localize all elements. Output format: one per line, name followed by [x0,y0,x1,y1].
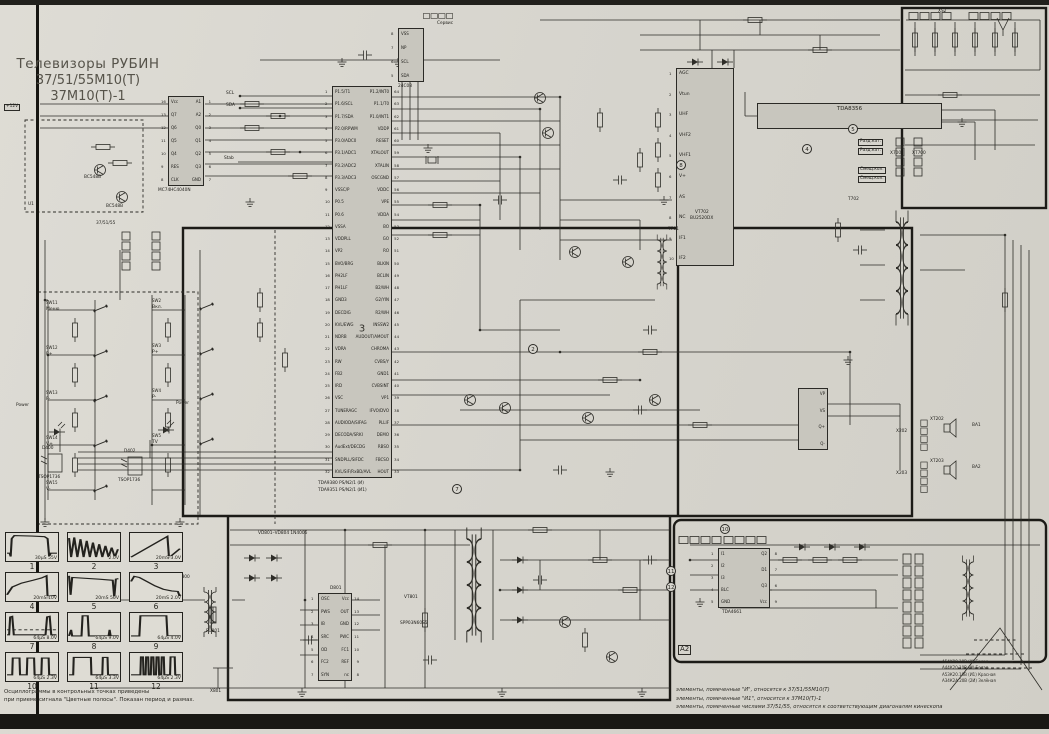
test-point: 7 [452,484,462,494]
pin-row: 35RBSO [378,445,389,449]
pin-number: 3 [669,113,671,117]
pin-row: 27TUNERAGC [335,409,357,413]
transistor-bc548b-2: BC548B [106,205,123,210]
pin-number: 1 [209,100,211,104]
oscillogram-number: 6 [129,602,183,611]
pin-number: 7 [311,673,313,677]
oscillogram-scale-label: 2.0V [109,556,119,561]
pin-label: Q0 [195,125,201,130]
pin-label: FB2 [335,371,343,376]
pin-number: 14 [325,249,330,253]
pin-row: 2A2 [196,113,201,117]
pin-label: P0.5 [335,199,344,204]
keyboard-key[interactable]: SW2Вкл. [150,296,222,341]
pin-number: 20 [325,323,330,327]
pin-label: D1 [761,567,767,572]
oscillogram-scale-label: 64µS 3.3V [95,676,119,681]
test-point: 10 [720,524,730,534]
pin-row: 6Q3 [195,165,201,169]
pin-row: 8NC [679,216,686,221]
pin-number: 7 [391,46,393,50]
pin-row: 33HOUT [377,470,389,474]
pin-row: 3I3 [721,576,725,580]
pin-row: 2P1.6/SCL [335,102,353,106]
pin-label: A1 [196,99,201,104]
keyboard-key[interactable]: SW4P- [150,386,222,431]
switch-ref: SW11 [46,300,58,305]
pin-label: SCL [401,59,409,64]
pin-row: 50BLKIN [377,262,389,266]
keyboard-key[interactable]: SW5TV [150,431,222,476]
module-u1-label: U1 [28,203,34,208]
oscillogram-note-line1: Осциллограммы в контрольных точках приве… [4,688,194,696]
keyboard-key[interactable]: SW13P- [44,388,116,433]
pin-label: VDDP [378,126,389,131]
crt-connector-label-1: Разд.кат. [858,139,883,146]
pin-number: 39 [394,396,399,400]
pin-label: IF1 [679,236,686,241]
pin-number: 13 [354,610,359,614]
pin-row: 58XTALIN [375,164,389,168]
pin-label: IRD [335,383,342,388]
switch-label: P+ [46,352,52,357]
pin-row: 4BLC [721,588,729,592]
bus-stab-label: Stab [224,157,234,162]
pin-row: 8Q2 [761,552,767,556]
pin-number: 7 [775,568,777,572]
pin-label: BLC [721,587,729,592]
switch-icon [201,349,212,354]
pin-row: 44AUDOUT/AMOUT [356,335,389,339]
switch-icon [201,394,212,399]
pin-number: 17 [325,286,330,290]
keyboard-key[interactable]: SW12P+ [44,343,116,388]
schematic-title-line2: 37/51/55М10(Т) [8,73,168,89]
pin-number: 7 [669,196,671,200]
pin-row: 47G2/YIN [375,298,389,302]
pin-label: VDDC [377,187,389,192]
pin-label: OUT [340,609,349,614]
pin-row: 11PWC [340,635,349,639]
pin-label: Vcc [171,99,178,104]
pin-label: IB [321,621,325,626]
pin-number: 15 [325,262,330,266]
pin-label: nc [344,672,349,677]
counter-name: MC74HC4040N [158,188,191,193]
oscilloscope-trace-box: pulse_wide 64µS 4.0V [129,612,183,642]
pin-label: Q- [820,441,825,446]
pin-number: 1 [669,72,671,76]
pin-label: XTALIN [375,163,389,168]
oscillogram: ramp 20mS 3.0V 3 [129,532,186,572]
schematic-title-line1: Телевизоры РУБИН [8,56,168,73]
eeprom-name: 24C08 [398,84,412,89]
oscillogram: pulse_dashed 64µS 8.0V 7 [5,612,62,652]
pin-row: 4Q1 [195,139,201,143]
pin-row: 8VSS [401,32,409,36]
pin-row: 15BVO/BRG [335,262,353,266]
uoc-type-line2: TDA9351 PS/N2/1 (И1) [318,488,367,493]
pin-number: 10 [354,648,359,652]
switch-label: Вкл. [152,305,162,310]
pin-number: 52 [394,237,399,241]
pin-row: 3Q0 [195,126,201,130]
keyboard-key[interactable]: SW11Меню [44,298,116,343]
pin-number: 3 [325,115,327,119]
pin-row: 1P1.5/T1 [335,90,350,94]
oscillogram: wide_narrow 64µS 3.3V 11 [67,652,124,692]
pin-number: 5 [391,74,393,78]
pin-number: 19 [325,311,330,315]
connector-x202-label: Х202 [896,430,907,435]
oscillogram-scale-label: 20mS 2.0V [156,596,181,601]
audio-pins: VPVSQ+Q- [819,392,826,446]
pin-label: BVO/BRG [335,261,353,266]
pin-number: 4 [311,635,313,639]
legend-line2: элементы, помеченные "И1", относятся к 3… [676,695,943,704]
pin-row: 6P3.1/ADC1 [335,151,356,155]
pin-row: 52GO [383,237,389,241]
oscillogram-number: 3 [129,562,183,571]
oscilloscope-trace-box: vsync_pulse 30µS 55V [5,532,59,562]
connector-x700-label: Х700 [890,152,901,157]
schematic-title-line3: 37М10(Т)-1 [8,89,168,105]
pin-label: FC2 [321,659,329,664]
pin-label: P1.1/T0 [374,101,389,106]
pin-label: GND3 [335,297,347,302]
uoc-type-line1: TDA9380 PS/N2/1 (И) [318,481,364,486]
pin-number: 47 [394,298,399,302]
pin-row: 5Q2 [195,152,201,156]
pin-row: 14VP2 [335,249,343,253]
switch-ref: SW15 [46,480,58,485]
scan-edge-bottom [0,714,1049,729]
pin-row: 3IB [321,622,325,626]
pin-number: 48 [394,286,399,290]
pin-row: 7NP [401,46,406,50]
pin-label: Q2 [195,151,201,156]
pin-row: 4SRC [321,635,329,639]
pin-row: Q- [820,442,825,446]
pin-number: 8 [161,178,163,182]
pin-row: 26VSC [335,396,343,400]
schematic-sheet: Телевизоры РУБИН 37/51/55М10(Т) 37М10(Т)… [0,0,1049,734]
speaker-ba1-label: ВА1 [972,424,981,429]
pin-label: G2/YIN [375,297,389,302]
pin-label: P1.2/INT0 [370,89,389,94]
pin-row: 46R2/WH [375,311,389,315]
switch-label: V- [46,487,50,492]
pin-row: 6FC2 [321,660,329,664]
switch-ref: SW14 [46,435,58,440]
pin-number: 54 [394,213,399,217]
pin-label: GND [721,599,730,604]
pin-label: FBCSO [376,457,389,462]
pin-number: 2 [325,102,327,106]
oscilloscope-trace-box: pulses3 64µS 2.3V [5,652,59,682]
pin-label: OSCGND [371,175,389,180]
pin-label: XTALOUT [371,150,389,155]
test-point: 5 [848,124,858,134]
component-legend: элементы, помеченные "И", относятся к 37… [676,686,943,712]
pin-number: 26 [325,396,330,400]
pin-row: 6Q3 [761,584,767,588]
pin-row: 54VDDA [377,213,389,217]
pin-row: 5OD [321,648,327,652]
pin-label: VSC [335,395,343,400]
oscilloscope-trace-box: pulse_dashed 64µS 8.0V [5,612,59,642]
delay-ic-name: TDA4661 [722,610,742,615]
pin-label: NDRB [335,334,347,339]
pin-row: 39VP1 [381,396,389,400]
pin-number: 14 [354,597,359,601]
keyboard-right-column: SW2Вкл.SW3P+SW4P-SW5TV [150,296,222,476]
pin-label: FC1 [341,647,349,652]
oscilloscope-trace-box: ramp 20mS 3.0V [129,532,183,562]
bus-sda-label: SDA [226,104,235,109]
pin-row: 57OSCGND [371,176,389,180]
oscillogram-number: 8 [67,642,121,651]
pin-label: AGC [679,71,689,76]
oscillogram-number: 9 [129,642,183,651]
pin-label: TUNERAGC [335,408,357,413]
ic-eeprom-24c08: 8VSS7NP6SCL5SDA [398,28,424,82]
pin-label: IF2 [679,256,686,261]
pin-row: 37PLLIF [379,421,389,425]
pin-row: 53BO [383,225,389,229]
test-point: 8 [676,160,686,170]
pin-label: P3.3/ADC3 [335,175,356,180]
hot-transistor-ref: VT702 [695,211,709,216]
oscilloscope-trace-box: saw_teeth 2.0V [67,532,121,562]
pin-label: GO [383,236,389,241]
pin-number: 12 [161,126,166,130]
pin-label: PWS [321,609,330,614]
pin-label: CHROMA [371,346,389,351]
ir-receiver-type-2: TSOP1736 [118,479,140,484]
pin-label: OD [321,647,327,652]
pin-row: 48B2/WH [375,286,389,290]
pin-label: VHF2 [679,133,691,138]
pin-number: 9 [775,600,777,604]
pin-label: P1.0/INT1 [370,114,389,119]
eeprom-pins: 8VSS7NP6SCL5SDA [401,32,409,78]
pin-row: 8nc [344,673,349,677]
pin-number: 55 [394,200,399,204]
pin-row: 9REF [341,660,349,664]
pin-number: 9 [161,165,163,169]
pin-number: 2 [311,610,313,614]
delay-right-pins: 8Q27D16Q39Vcc [760,552,767,604]
pin-row: 4P2.0/RPWM [335,127,358,131]
pin-row: 64P1.2/INT0 [370,90,389,94]
pin-row: 16PH2LF [335,274,348,278]
pin-row: 5P3.0/ADC0 [335,139,356,143]
pin-number: 1 [311,597,313,601]
pin-number: 33 [394,470,399,474]
pin-row: 11P0.6 [335,213,344,217]
mosfet-ref: VT801 [404,596,418,601]
pin-row: 13Q7 [171,113,177,117]
pin-row: 10Q4 [171,152,177,156]
pin-number: 53 [394,225,399,229]
pin-label: DECDIG [335,310,351,315]
keyboard-key[interactable]: SW15V- [44,478,116,523]
pin-row: 13OUT [340,610,349,614]
pin-number: 21 [325,335,330,339]
oscillogram-note-line2: при приеме сигнала "Цветные полосы". Пок… [4,696,194,704]
oscilloscope-trace-box: pulse_narrow 64µS 9.0V [67,612,121,642]
ir-receiver-type-1: TSOP1736 [38,476,60,481]
pin-row: 49BCLIN [377,274,389,278]
test-point: 4 [802,144,812,154]
oscilloscope-trace-box: slow_rise 20mS 10V [5,572,59,602]
pin-label: Vcc [760,599,767,604]
pin-row: 9VSSC/P [335,188,349,192]
switch-label: P- [152,395,156,400]
pin-number: 64 [394,90,399,94]
pin-row: 17PH1LF [335,286,348,290]
pin-label: SYN [321,672,329,677]
pin-row: 9RES [171,165,179,169]
pin-label: SDA [401,73,409,78]
pin-row: 2I2 [721,564,725,568]
test-point: 12 [666,582,676,592]
speaker-ba2-label: ВА2 [972,466,981,471]
pin-row: 63P1.1/T0 [374,102,389,106]
pin-label: R2/WH [375,310,389,315]
oscilloscope-trace-box: wide_narrow 64µS 3.3V [67,652,121,682]
pin-label: VSS [401,31,409,36]
pin-row: 7GND [192,178,201,182]
rail-12v-label: +12V [4,104,20,111]
pin-number: 8 [391,32,393,36]
pin-row: 1OSC [321,597,329,601]
pin-label: NP [401,45,406,50]
test-point: 11 [666,566,676,576]
pin-number: 9 [325,188,327,192]
pin-label: IFVO/DVO [370,408,389,413]
crt-connector-label-2: Разд.кат. [858,148,883,155]
pin-label: RES [171,164,179,169]
pin-row: 38IFVO/DVO [370,409,389,413]
oscillogram-scale-label: 20mS 3.0V [156,556,181,561]
pin-number: 63 [394,102,399,106]
pin-label: B2/WH [375,285,389,290]
pin-number: 6 [775,584,777,588]
pin-label: CVBSINT [372,383,389,388]
yoke-wire-line: А34К2А.20В (2И) Зелёная [942,678,996,684]
pin-label: VPE [381,199,389,204]
smps-right-pins: 14Vcc13OUT12GND11PWC10FC19REF8nc [340,597,349,677]
pin-row: 25IRD [335,384,342,388]
pin-row: 40CVBSINT [372,384,389,388]
pin-row: 51RO [383,249,389,253]
pin-number: 41 [394,372,399,376]
pin-number: 8 [775,552,777,556]
pin-number: 6 [311,660,313,664]
pin-number: 38 [394,409,399,413]
pin-number: 11 [325,213,330,217]
switch-icon [201,304,212,309]
pin-number: 49 [394,274,399,278]
pin-number: 22 [325,347,330,351]
pin-label: I3 [721,575,725,580]
pin-label: P0.6 [335,212,344,217]
yoke-wire-list: А54К90.10В (И) Белая А44К20.10В (И) Бела… [942,659,996,685]
pin-number: 16 [161,100,166,104]
pin-label: AUDOUT/AMOUT [356,334,389,339]
pin-row: 62P1.0/INT1 [370,115,389,119]
connector-x203-label: Х203 [896,472,907,477]
pin-label: VP2 [335,248,343,253]
pin-label: BCLIN [377,273,389,278]
pin-number: 9 [669,237,671,241]
pin-row: 7P3.2/ADC2 [335,164,356,168]
pin-number: 42 [394,360,399,364]
oscillogram-scale-label: 64µS 8.0V [33,636,57,641]
switch-icon [95,396,106,401]
pin-label: VP1 [381,395,389,400]
pin-row: 19DECDIG [335,311,351,315]
pin-row: 13VDDPLL [335,237,351,241]
crt-connector-label-4: Смещ.кол. [858,176,886,183]
pin-number: 4 [711,588,713,592]
oscillogram-number: 7 [5,642,59,651]
oscillogram: pulses3 64µS 2.3V 10 [5,652,62,692]
connector-xt203-label: ХТ203 [930,460,944,465]
pin-label: SRC [321,634,329,639]
pin-number: 59 [394,151,399,155]
ir-receiver-ref-2: D402 [124,450,136,455]
pin-number: 44 [394,335,399,339]
keyboard-key[interactable]: SW3P+ [150,341,222,386]
uoc-right-pins: 64P1.2/INT063P1.1/T062P1.0/INT161VDDP60R… [356,90,389,474]
pin-label: CLK [171,177,179,182]
ic-uoc-tda9380: 1P1.5/T12P1.6/SCL3P1.7/SDA4P2.0/RPWM5P3.… [332,86,392,478]
pin-number: 18 [325,298,330,302]
pin-label: DEMO [377,432,389,437]
pin-row: 60RESET [376,139,389,143]
oscilloscope-trace-box: burst 64µS 2.3V [129,652,183,682]
pin-row: 12VSSA [335,225,346,229]
pin-row: 7D1 [761,568,767,572]
switch-icon [95,486,106,491]
pin-label: HOUT [377,469,389,474]
pin-label: P1.6/SCL [335,101,353,106]
pin-label: GND1 [377,371,389,376]
pin-row: 5GND [721,600,730,604]
pin-row: 61VDDP [378,127,389,131]
pin-number: 23 [325,360,330,364]
pin-row: 4VHF2 [679,134,691,139]
pin-label: NC [679,215,686,220]
pin-row: 7AS [679,196,685,201]
pin-row: 3UHF [679,113,688,118]
oscillogram-scale-label: 64µS 9.0V [95,636,119,641]
keyboard-key[interactable]: SW14V+ [44,433,116,478]
pin-number: 28 [325,421,330,425]
pin-row: 23RW [335,360,342,364]
switch-ref: SW5 [152,433,161,438]
switch-ref: SW12 [46,345,58,350]
switch-label: P+ [152,350,158,355]
pin-label: P3.0/ADC0 [335,138,356,143]
switch-label: Меню [46,307,59,312]
pin-number: 10 [325,200,330,204]
oscillogram: slow_rise 20mS 10V 4 [5,572,62,612]
oscillogram: hump 20mS 2.0V 6 [129,572,186,612]
